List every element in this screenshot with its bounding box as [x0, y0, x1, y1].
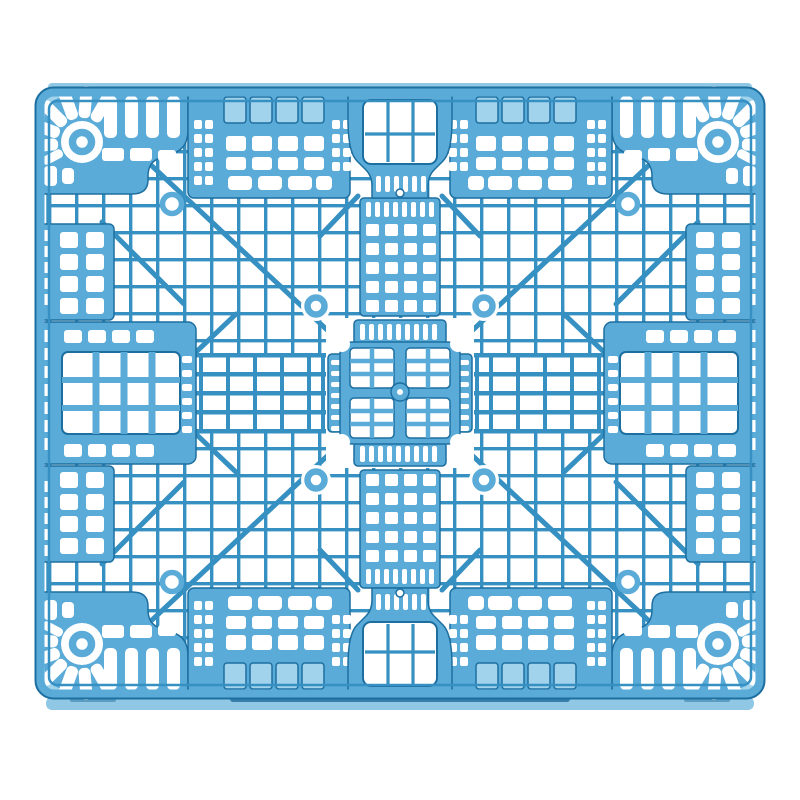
edge-strip-top — [188, 92, 351, 198]
side-runner-block-right — [604, 322, 764, 464]
center-boss-hole — [397, 389, 403, 395]
side-runner-block-left — [36, 322, 196, 464]
edge-strip-side — [36, 224, 114, 320]
cap-pin-hole — [396, 189, 404, 197]
deck-band-right — [474, 353, 604, 434]
deck-band-left — [196, 353, 326, 434]
strip-slots — [226, 136, 332, 190]
stringer-grid-lower — [360, 470, 440, 588]
vent-hole — [163, 195, 182, 214]
cap-window — [363, 100, 437, 164]
pallet-photo — [0, 0, 800, 800]
corner-hub-hole — [61, 121, 103, 163]
stringer-grid-upper — [360, 198, 440, 316]
pallet-illustration — [0, 0, 800, 800]
center-block — [326, 318, 474, 468]
photo-canvas — [0, 0, 800, 800]
